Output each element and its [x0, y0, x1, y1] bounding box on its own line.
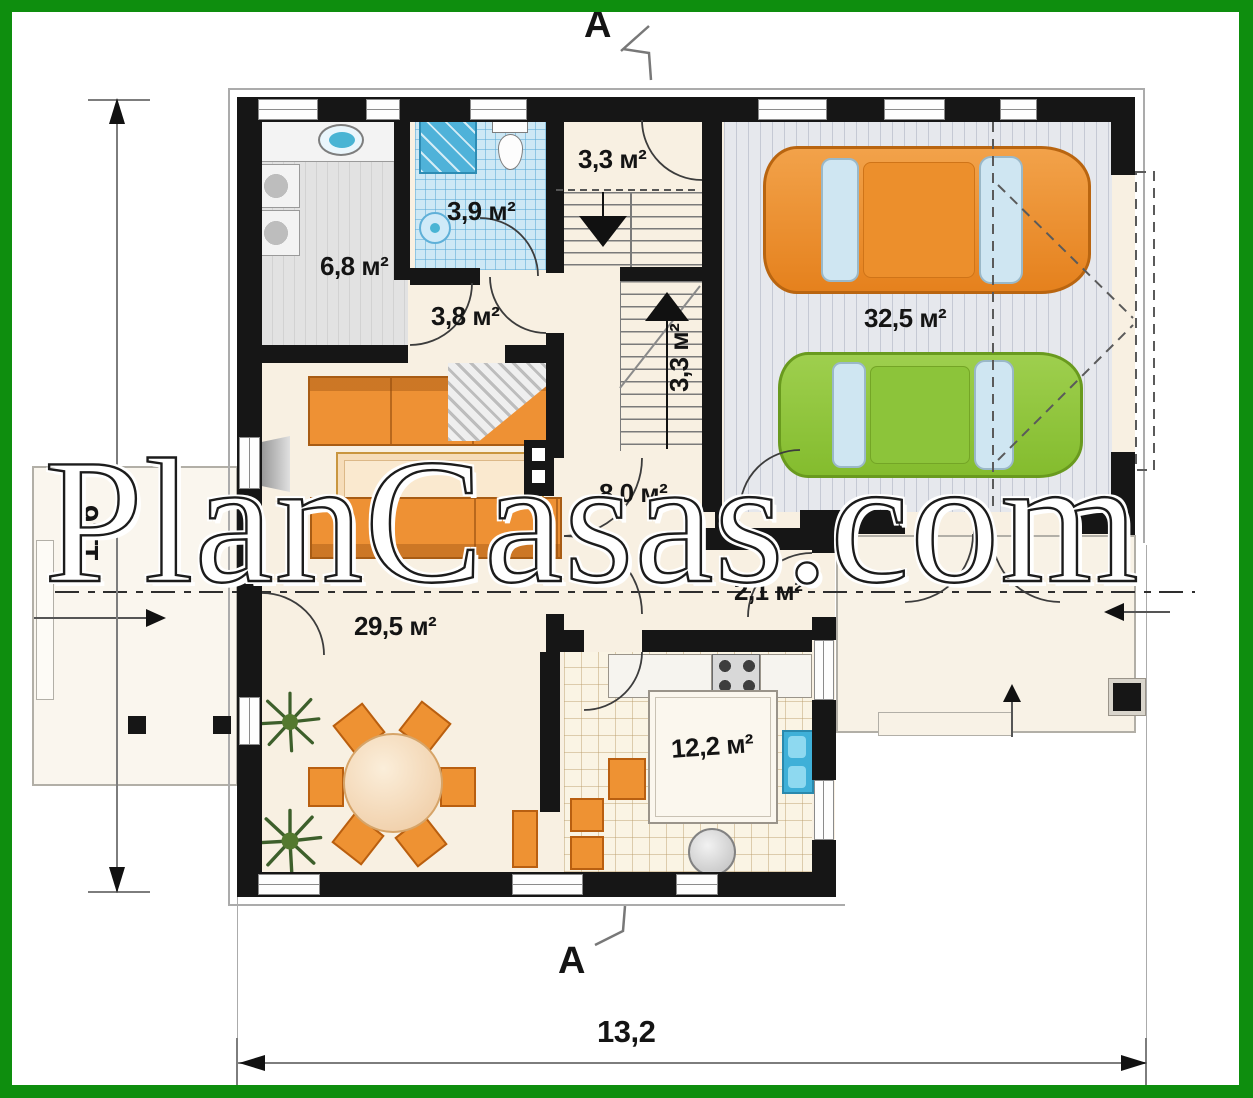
porch-column-core	[1113, 683, 1141, 711]
dining-chair	[440, 767, 476, 807]
room-label-kitchen: 12,2 м²	[670, 730, 754, 762]
window	[258, 874, 320, 895]
car-orange-roof	[863, 162, 975, 278]
bath-sink-drain	[430, 223, 440, 233]
dining-chair	[308, 767, 344, 807]
frame-top	[0, 0, 1253, 12]
window	[814, 640, 834, 700]
kitchen-stool	[570, 836, 604, 870]
wall-living-kitchen	[540, 652, 560, 812]
house-outline-right	[1143, 88, 1145, 543]
wall-right-d	[812, 840, 836, 897]
watermark: PlanCasas.com	[44, 418, 1140, 624]
wall-garage-right-top	[1111, 97, 1135, 175]
stairs-divider	[630, 192, 632, 267]
frame-left	[0, 0, 12, 1098]
sink-basin	[788, 736, 806, 758]
kitchen-sink	[782, 730, 814, 794]
plant-icon	[256, 806, 324, 876]
room-label-garage: 32,5 м²	[864, 305, 946, 331]
house-outline-bottom	[228, 904, 845, 906]
car-orange-windshield	[979, 156, 1023, 284]
sink-basin	[788, 766, 806, 788]
kitchen-stool	[608, 758, 646, 800]
window	[676, 874, 718, 895]
section-marker-bottom: A	[558, 942, 585, 980]
wall-stairs-stub	[620, 267, 702, 281]
dim-arrow-up	[109, 98, 125, 124]
window	[366, 99, 400, 120]
dim-tick	[236, 1038, 238, 1088]
floor-plan: 3,3 м² 3,9 м² 6,8 м² 3,8 м² 3,3 м² 32,5 …	[0, 0, 1253, 1098]
window	[239, 697, 260, 745]
room-label-stairs: 3,3 м²	[666, 324, 692, 392]
boiler	[688, 828, 736, 876]
shower	[419, 116, 477, 174]
dining-table	[343, 733, 443, 833]
window	[1000, 99, 1037, 120]
wall-bath-south	[410, 268, 480, 285]
room-label-hall-small: 3,8 м²	[431, 303, 499, 329]
dim-arrow-left	[239, 1055, 265, 1071]
window	[512, 874, 583, 895]
dim-line-horizontal	[237, 1062, 1147, 1064]
car-orange-rear-window	[821, 158, 859, 282]
stairs-upper-flight	[556, 192, 702, 267]
wall-corridor-upper	[546, 97, 564, 273]
dim-arrow-down	[109, 867, 125, 893]
terrace-column	[213, 716, 231, 734]
plant-icon	[258, 688, 322, 756]
window	[258, 99, 318, 120]
porch-step	[878, 712, 1012, 736]
extension-line	[1146, 545, 1147, 1069]
wall-kitchen-north-a	[564, 630, 584, 652]
room-label-utility: 6,8 м²	[320, 253, 388, 279]
utility-sink-basin	[329, 132, 355, 148]
window	[470, 99, 527, 120]
frame-bottom	[0, 1085, 1253, 1098]
room-label-pantry: 3,3 м²	[578, 146, 646, 172]
terrace-column	[128, 716, 146, 734]
wall-right-c	[812, 700, 836, 780]
window	[884, 99, 945, 120]
porch-column	[1108, 678, 1146, 716]
house-outline-top	[228, 88, 1144, 90]
window	[758, 99, 827, 120]
room-label-bathroom: 3,9 м²	[447, 198, 515, 224]
cabinet-orange	[512, 810, 538, 868]
wall-living-north-a	[237, 345, 408, 363]
utility-sink	[318, 124, 364, 156]
kitchen-stool	[570, 798, 604, 832]
window	[814, 780, 834, 840]
wall-kitchen-north-b	[642, 630, 812, 652]
dim-label-width: 13,2	[597, 1016, 655, 1047]
dim-arrow-right	[1121, 1055, 1147, 1071]
frame-right	[1239, 0, 1253, 1098]
wall-utility-bath	[394, 112, 410, 280]
